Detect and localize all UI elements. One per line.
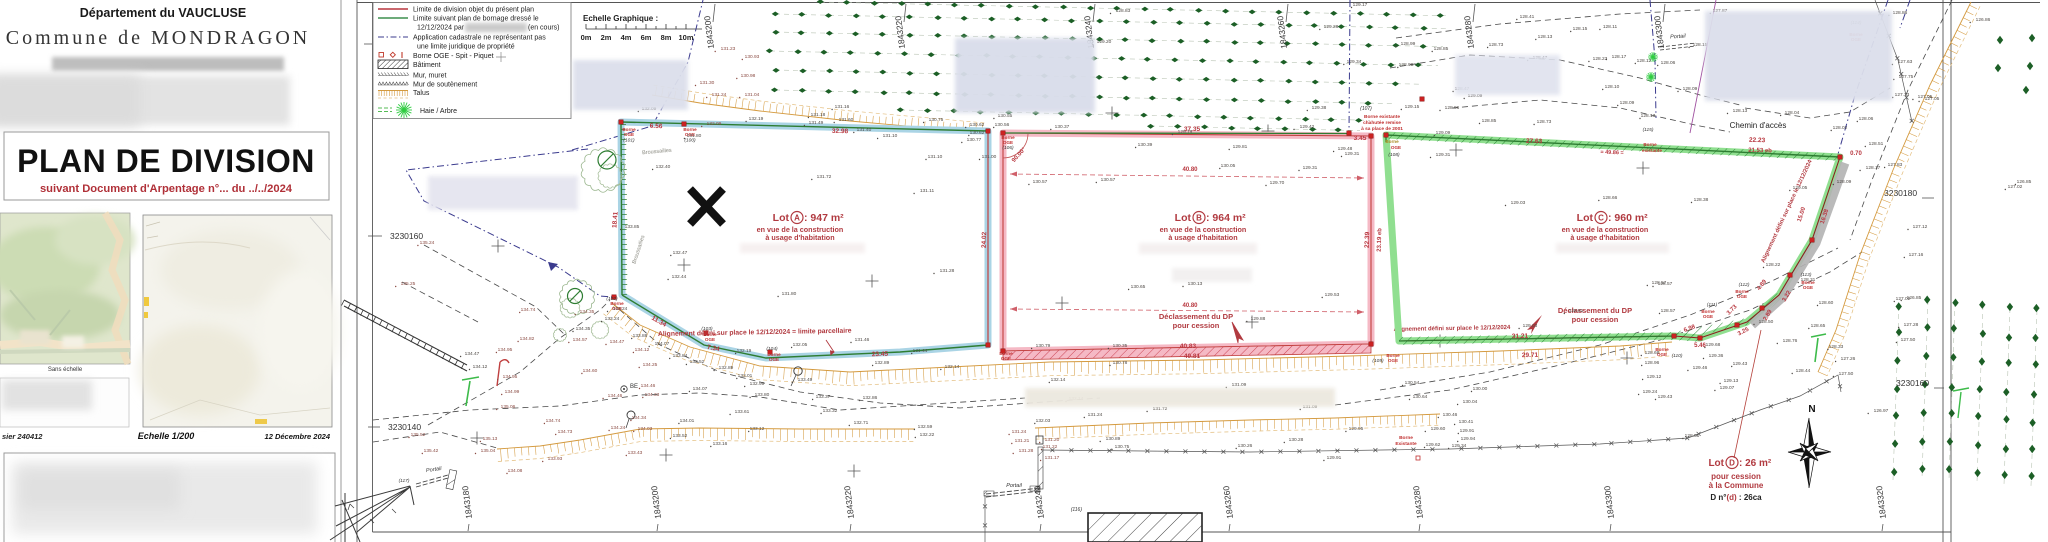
- svg-text:134.34: 134.34: [632, 415, 647, 421]
- svg-text:134.12: 134.12: [473, 364, 488, 370]
- svg-text:Portail: Portail: [1006, 483, 1022, 489]
- svg-text:128.57: 128.57: [1661, 308, 1676, 314]
- svg-text:129.12: 129.12: [1647, 374, 1662, 380]
- svg-text:128.73: 128.73: [1489, 42, 1504, 48]
- svg-text:130.93: 130.93: [745, 54, 760, 60]
- svg-text:à usage d'habitation: à usage d'habitation: [1570, 233, 1639, 242]
- svg-text:129.34: 129.34: [1347, 59, 1362, 65]
- svg-text:(109): (109): [1372, 358, 1384, 364]
- svg-text:pour cession: pour cession: [1572, 315, 1619, 324]
- svg-text:129.43: 129.43: [1733, 361, 1748, 367]
- svg-text:= 49.86 =: = 49.86 =: [1600, 150, 1623, 157]
- svg-text:130.78: 130.78: [1113, 360, 1128, 366]
- svg-text:29.71: 29.71: [1522, 352, 1539, 359]
- svg-text:135.42: 135.42: [424, 448, 439, 454]
- svg-text:133.12: 133.12: [750, 426, 765, 432]
- svg-text:Limite de division objet du pr: Limite de division objet du présent plan: [413, 7, 534, 14]
- svg-text:129.09: 129.09: [1436, 130, 1451, 136]
- svg-text:127.50: 127.50: [1839, 371, 1854, 377]
- svg-text:131.28: 131.28: [1019, 448, 1034, 454]
- svg-text:129.91: 129.91: [1327, 455, 1342, 461]
- svg-text:134.25: 134.25: [643, 362, 658, 368]
- svg-text:6.56: 6.56: [650, 123, 663, 130]
- svg-text:133.32: 133.32: [823, 408, 838, 414]
- svg-text:132.59: 132.59: [918, 424, 933, 430]
- svg-text:128.15: 128.15: [1573, 26, 1588, 32]
- svg-text:131.49: 131.49: [809, 120, 824, 126]
- svg-text:132.44: 132.44: [672, 274, 687, 280]
- svg-text:130.62: 130.62: [970, 130, 985, 136]
- svg-text:131.18: 131.18: [811, 112, 826, 118]
- svg-text:Déclassement du DP: Déclassement du DP: [1159, 312, 1233, 321]
- svg-text:129.62: 129.62: [1426, 442, 1441, 448]
- svg-text:134.46: 134.46: [641, 383, 656, 389]
- svg-text:D: D: [1729, 458, 1735, 467]
- svg-text:Lot: Lot: [1577, 212, 1594, 224]
- svg-text:Lot: Lot: [1175, 212, 1192, 224]
- svg-text:134.74: 134.74: [546, 418, 561, 424]
- svg-text:PLAN DE DIVISION: PLAN DE DIVISION: [17, 143, 315, 179]
- svg-text:129.42: 129.42: [1300, 124, 1315, 130]
- svg-text:N: N: [1808, 404, 1815, 415]
- svg-text:129.53: 129.53: [1325, 292, 1340, 298]
- svg-text:128.13: 128.13: [1641, 113, 1656, 119]
- svg-text:6m: 6m: [641, 33, 652, 42]
- svg-text:129.95: 129.95: [1349, 426, 1364, 432]
- svg-text:133.88: 133.88: [633, 333, 648, 339]
- svg-text:128.96: 128.96: [1445, 105, 1460, 111]
- svg-text:132.09: 132.09: [707, 121, 722, 127]
- svg-text:128.38: 128.38: [1694, 197, 1709, 203]
- svg-text:128.10: 128.10: [1605, 84, 1620, 90]
- svg-text:131.10: 131.10: [883, 133, 898, 139]
- svg-text:129.03: 129.03: [1523, 323, 1538, 329]
- svg-text:131.24: 131.24: [1088, 412, 1103, 418]
- svg-text:128.23: 128.23: [1593, 56, 1608, 62]
- svg-text:Département du VAUCLUSE: Département du VAUCLUSE: [80, 6, 246, 20]
- svg-text:132.03: 132.03: [1036, 418, 1051, 424]
- svg-text:130.26: 130.26: [1238, 443, 1253, 449]
- svg-text:131.44: 131.44: [913, 348, 928, 354]
- svg-text:128.99: 128.99: [1401, 41, 1416, 47]
- svg-text:130.89: 130.89: [1106, 436, 1121, 442]
- svg-text:131.17: 131.17: [1045, 455, 1060, 461]
- svg-text:OGE: OGE: [1803, 285, 1813, 290]
- svg-text:130.55: 130.55: [998, 113, 1013, 119]
- svg-text:134.74: 134.74: [521, 307, 536, 313]
- svg-text:129.60: 129.60: [1431, 426, 1446, 432]
- svg-text:OGE: OGE: [624, 132, 634, 137]
- svg-text:129.70: 129.70: [1270, 180, 1285, 186]
- svg-text:130.56: 130.56: [995, 122, 1010, 128]
- svg-text:133.80: 133.80: [755, 392, 770, 398]
- svg-text:131.40: 131.40: [857, 127, 872, 133]
- svg-text:134.12: 134.12: [635, 347, 650, 353]
- svg-text:127.83: 127.83: [1888, 162, 1903, 168]
- svg-text:129.31: 129.31: [1436, 152, 1451, 158]
- svg-text:127.05: 127.05: [1925, 96, 1940, 102]
- svg-text:132.05: 132.05: [793, 342, 808, 348]
- svg-text:134.24: 134.24: [611, 425, 626, 431]
- svg-text:128.65: 128.65: [1811, 323, 1826, 329]
- svg-text:134.35: 134.35: [576, 326, 591, 332]
- svg-text:131.72: 131.72: [817, 174, 832, 180]
- svg-text:Lot: Lot: [1708, 458, 1724, 469]
- svg-text:2m: 2m: [601, 33, 612, 42]
- svg-text:pour cession: pour cession: [1711, 472, 1761, 481]
- svg-text:Borne: Borne: [1385, 139, 1399, 144]
- svg-text:128.83: 128.83: [1116, 8, 1131, 14]
- svg-text:128.60: 128.60: [1819, 300, 1834, 306]
- svg-text:133.84: 133.84: [673, 353, 688, 359]
- svg-text:(116): (116): [1071, 507, 1083, 513]
- svg-text:130.98: 130.98: [741, 73, 756, 79]
- svg-text:128.13: 128.13: [1538, 34, 1553, 40]
- svg-text:131.80: 131.80: [687, 133, 702, 139]
- svg-text:128.51: 128.51: [1869, 141, 1884, 147]
- svg-text:BE: BE: [630, 384, 638, 390]
- svg-text:129.17: 129.17: [1353, 2, 1368, 8]
- svg-text:127.73: 127.73: [1895, 92, 1910, 98]
- svg-text:Talus: Talus: [413, 90, 430, 97]
- svg-text:131.46: 131.46: [855, 337, 870, 343]
- svg-text:128.22: 128.22: [1766, 262, 1781, 268]
- svg-text:128.06: 128.06: [1661, 60, 1676, 66]
- svg-text:A: A: [794, 213, 800, 222]
- svg-text:128.33: 128.33: [1829, 344, 1844, 350]
- svg-text:131.09: 131.09: [1232, 382, 1247, 388]
- svg-text:128.41: 128.41: [1520, 14, 1535, 20]
- svg-text:128.76: 128.76: [1783, 338, 1798, 344]
- svg-text:129.31: 129.31: [1303, 165, 1318, 171]
- svg-text:129.20: 129.20: [1097, 39, 1112, 45]
- svg-text:128.86: 128.86: [1893, 10, 1908, 16]
- svg-text:128.99: 128.99: [1399, 62, 1414, 68]
- svg-text:130.65: 130.65: [1131, 284, 1146, 290]
- svg-text:133.52: 133.52: [673, 433, 688, 439]
- svg-text:134.60: 134.60: [583, 368, 598, 374]
- svg-text:à sa place de 2001: à sa place de 2001: [1361, 126, 1403, 132]
- svg-text:131.28: 131.28: [940, 268, 955, 274]
- svg-text:(104): (104): [766, 346, 778, 352]
- svg-text:128.68: 128.68: [1645, 350, 1660, 356]
- svg-text:131.23: 131.23: [721, 46, 736, 52]
- svg-text:Borne: Borne: [1643, 142, 1657, 147]
- svg-text:128.73: 128.73: [1537, 119, 1552, 125]
- svg-text:OGE: OGE: [1737, 294, 1747, 299]
- svg-text:27.63: 27.63: [1526, 138, 1543, 146]
- svg-text:128.09: 128.09: [1837, 179, 1852, 185]
- svg-text:40.80: 40.80: [1182, 167, 1198, 173]
- svg-text:135.24: 135.24: [420, 240, 435, 246]
- svg-text:130.05: 130.05: [1221, 163, 1236, 169]
- svg-text:135.25: 135.25: [401, 281, 416, 287]
- svg-text:128.17: 128.17: [1866, 165, 1881, 171]
- svg-text:(107): (107): [1360, 106, 1372, 112]
- svg-text:Haie / Arbre: Haie / Arbre: [420, 108, 457, 115]
- svg-text:126.97: 126.97: [1874, 408, 1889, 414]
- svg-text:133.16: 133.16: [713, 441, 728, 447]
- svg-text:suivant Document d'Arpentage n: suivant Document d'Arpentage n°... du ..…: [40, 183, 293, 195]
- svg-text:131.60: 131.60: [839, 117, 854, 123]
- svg-text:135.06: 135.06: [501, 404, 516, 410]
- svg-text:8m: 8m: [661, 33, 672, 42]
- svg-text:132.22: 132.22: [920, 432, 935, 438]
- svg-text:135.04: 135.04: [481, 448, 496, 454]
- svg-text:131.24: 131.24: [1012, 429, 1027, 435]
- svg-text:133.24: 133.24: [605, 316, 620, 322]
- svg-text:OGE: OGE: [1001, 356, 1011, 361]
- svg-text:3230180: 3230180: [1884, 188, 1917, 198]
- svg-text:21.53 eb: 21.53 eb: [1748, 148, 1772, 155]
- svg-text:134.08: 134.08: [508, 468, 523, 474]
- svg-text:18.41: 18.41: [611, 211, 619, 228]
- svg-text:OGE: OGE: [769, 357, 779, 362]
- svg-text:Limite suivant plan de bornage: Limite suivant plan de bornage dressé le: [413, 16, 539, 23]
- svg-text:130.39: 130.39: [1138, 142, 1153, 148]
- svg-text:129.34: 129.34: [1452, 443, 1467, 449]
- svg-text:130.54: 130.54: [1405, 380, 1420, 386]
- svg-text:134.82: 134.82: [520, 336, 535, 342]
- svg-text:OGE: OGE: [1391, 145, 1401, 150]
- svg-text:(108): (108): [1388, 152, 1400, 158]
- svg-text:OGE: OGE: [705, 337, 715, 342]
- svg-text:133.37: 133.37: [816, 394, 831, 400]
- svg-text:134.99: 134.99: [505, 389, 520, 395]
- svg-text:128.50: 128.50: [1759, 319, 1774, 325]
- svg-text:Portail: Portail: [1670, 33, 1687, 40]
- svg-text:129.81: 129.81: [1233, 144, 1248, 150]
- svg-text:132.47: 132.47: [673, 250, 688, 256]
- svg-text:132.89: 132.89: [875, 360, 890, 366]
- svg-text:131.30: 131.30: [700, 80, 715, 86]
- svg-text:131.80: 131.80: [782, 291, 797, 297]
- svg-text:131.04: 131.04: [745, 92, 760, 98]
- svg-text:chahutée remise: chahutée remise: [1363, 120, 1401, 126]
- svg-text:128.31: 128.31: [1801, 277, 1816, 283]
- svg-text:Existante: Existante: [1395, 441, 1417, 447]
- svg-text:(101): (101): [623, 138, 635, 144]
- svg-text:130.75: 130.75: [1115, 444, 1130, 450]
- svg-text:129.68: 129.68: [1706, 342, 1721, 348]
- svg-text:134.57: 134.57: [573, 337, 588, 343]
- svg-text:Mur de soutènement: Mur de soutènement: [413, 82, 477, 89]
- svg-text:131.20: 131.20: [1045, 437, 1060, 443]
- svg-text:à usage d'habitation: à usage d'habitation: [1168, 233, 1237, 242]
- svg-text:23.45: 23.45: [872, 351, 889, 359]
- svg-text:132.14: 132.14: [945, 364, 960, 370]
- svg-text:132.86: 132.86: [863, 395, 878, 401]
- svg-text:135.52: 135.52: [411, 432, 426, 438]
- svg-text:131.21: 131.21: [1015, 438, 1030, 444]
- svg-text:132.89: 132.89: [719, 365, 734, 371]
- svg-text:130.00: 130.00: [1473, 386, 1488, 392]
- svg-text:128.81: 128.81: [1569, 308, 1584, 314]
- svg-text:OGE: OGE: [1003, 140, 1013, 145]
- svg-text:134.73: 134.73: [558, 429, 573, 435]
- svg-text:3230140: 3230140: [388, 422, 421, 432]
- svg-text:126.85: 126.85: [2017, 179, 2032, 185]
- svg-text:129.94: 129.94: [1461, 436, 1476, 442]
- svg-text:131.11: 131.11: [920, 188, 935, 194]
- svg-text:128.85: 128.85: [1434, 46, 1449, 52]
- svg-text:128.96: 128.96: [1645, 360, 1660, 366]
- svg-text:pour cession: pour cession: [1173, 321, 1220, 330]
- svg-text:(111): (111): [1707, 302, 1718, 308]
- svg-text:126.86: 126.86: [1976, 17, 1991, 23]
- svg-text:129.31: 129.31: [1345, 151, 1360, 157]
- svg-text:0.70: 0.70: [1850, 151, 1862, 157]
- svg-text:Borne OGE - Spit - Piquet: Borne OGE - Spit - Piquet: [413, 53, 494, 60]
- svg-text:128.09: 128.09: [1683, 86, 1698, 92]
- svg-text:130.28: 130.28: [1289, 437, 1304, 443]
- svg-text:129.88: 129.88: [1251, 316, 1266, 322]
- svg-text:131.10: 131.10: [928, 154, 943, 160]
- svg-text:133.93: 133.93: [548, 456, 563, 462]
- svg-text:131.22: 131.22: [1043, 444, 1058, 450]
- svg-text:134.46: 134.46: [608, 393, 623, 399]
- svg-text:127.26: 127.26: [1841, 356, 1856, 362]
- svg-text:Echelle 1/200: Echelle 1/200: [138, 431, 195, 441]
- svg-text:133.85: 133.85: [625, 224, 640, 230]
- svg-text:132.19: 132.19: [749, 116, 764, 122]
- svg-text:128.12: 128.12: [1637, 58, 1652, 64]
- svg-text:: 947 m²: : 947 m²: [804, 212, 844, 224]
- svg-text:129.28: 129.28: [1324, 24, 1339, 30]
- svg-text:134.35: 134.35: [580, 309, 595, 315]
- svg-text:130.46: 130.46: [1443, 412, 1458, 418]
- svg-text:une limite juridique de propri: une limite juridique de propriété: [417, 44, 515, 51]
- svg-text:131.24: 131.24: [712, 92, 727, 98]
- svg-text:128.09: 128.09: [1620, 100, 1635, 106]
- svg-text:130.62: 130.62: [970, 122, 985, 128]
- svg-text:12/12/2024 par: 12/12/2024 par: [417, 25, 465, 32]
- svg-text:133.61: 133.61: [735, 409, 750, 415]
- svg-text:132.40: 132.40: [656, 164, 671, 170]
- svg-text:130.37: 130.37: [1055, 124, 1070, 130]
- svg-text:129.36: 129.36: [1709, 353, 1724, 359]
- svg-text:129.05: 129.05: [1793, 185, 1808, 191]
- svg-text:(112): (112): [1739, 282, 1750, 288]
- svg-text:128.13: 128.13: [1733, 108, 1748, 114]
- svg-text:127.12: 127.12: [1913, 224, 1928, 230]
- svg-text:40.80: 40.80: [1182, 303, 1198, 309]
- svg-text:129.79: 129.79: [1178, 129, 1193, 135]
- svg-text:127.28: 127.28: [1904, 322, 1919, 328]
- svg-text:OGE: OGE: [1703, 314, 1713, 319]
- svg-text:22.39: 22.39: [1364, 231, 1372, 248]
- svg-text:130.64: 130.64: [1413, 394, 1428, 400]
- svg-text:: 960 m²: : 960 m²: [1608, 212, 1648, 224]
- svg-text:130.79: 130.79: [1036, 343, 1051, 349]
- svg-text:3.45: 3.45: [1354, 135, 1367, 142]
- svg-text:128.04: 128.04: [1785, 110, 1800, 116]
- svg-text:129.38: 129.38: [1312, 105, 1327, 111]
- svg-text:128.51: 128.51: [1685, 433, 1700, 439]
- svg-text:10m: 10m: [678, 33, 693, 42]
- svg-text:Borne existante: Borne existante: [1364, 114, 1400, 120]
- svg-text:31.21: 31.21: [1512, 333, 1529, 340]
- svg-text:à la Commune: à la Commune: [1709, 481, 1764, 490]
- svg-text:D n°(d) : 26ca: D n°(d) : 26ca: [1710, 493, 1762, 502]
- svg-text:Lot: Lot: [773, 212, 790, 224]
- svg-text:134.95: 134.95: [503, 374, 518, 380]
- svg-text:130.57: 130.57: [1033, 179, 1048, 185]
- svg-text:à usage d'habitation: à usage d'habitation: [765, 233, 834, 242]
- svg-text:(en cours): (en cours): [528, 25, 560, 32]
- svg-text:existante: existante: [1642, 148, 1662, 153]
- svg-text:128.66: 128.66: [1603, 195, 1618, 201]
- svg-text:sier 240412: sier 240412: [2, 432, 43, 441]
- svg-text:127.75: 127.75: [1899, 74, 1914, 80]
- svg-text:130.57: 130.57: [1101, 177, 1116, 183]
- svg-text:128.02: 128.02: [1833, 125, 1848, 131]
- svg-text:134.07: 134.07: [655, 341, 670, 347]
- svg-text:130.77: 130.77: [967, 137, 982, 143]
- svg-text:132.14: 132.14: [1051, 377, 1066, 383]
- svg-text:24.02: 24.02: [981, 231, 989, 248]
- svg-text:Application cadastrale ne repr: Application cadastrale ne représentant p…: [413, 35, 546, 42]
- svg-text:133.52: 133.52: [690, 359, 705, 365]
- svg-text:132.19: 132.19: [737, 348, 752, 354]
- svg-text:C: C: [1598, 213, 1604, 222]
- svg-text:127.16: 127.16: [1909, 252, 1924, 258]
- svg-text:127.02: 127.02: [1896, 296, 1911, 302]
- svg-text:134.33: 134.33: [645, 392, 660, 398]
- svg-text:129.46: 129.46: [1693, 365, 1708, 371]
- svg-text:Chemin d'accès: Chemin d'accès: [1730, 121, 1787, 130]
- svg-text:130.04: 130.04: [1463, 399, 1478, 405]
- svg-text:Echelle Graphique :: Echelle Graphique :: [583, 14, 658, 23]
- svg-text:129.13: 129.13: [1724, 378, 1739, 384]
- svg-text:135.13: 135.13: [483, 436, 498, 442]
- svg-text:3230160: 3230160: [390, 231, 423, 241]
- svg-text:128.44: 128.44: [1796, 368, 1811, 374]
- svg-text:134.95: 134.95: [498, 347, 513, 353]
- svg-text:134.07: 134.07: [693, 386, 708, 392]
- svg-text:132.71: 132.71: [854, 420, 869, 426]
- svg-text:133.24: 133.24: [613, 306, 628, 312]
- svg-text:(115): (115): [1643, 127, 1654, 133]
- svg-text:40.83: 40.83: [1180, 343, 1197, 350]
- svg-text:128.57: 128.57: [1658, 281, 1673, 287]
- svg-text:129.43: 129.43: [1658, 394, 1673, 400]
- svg-text:133.43: 133.43: [628, 450, 643, 456]
- svg-text:(110): (110): [1672, 353, 1683, 359]
- svg-text:134.01: 134.01: [680, 418, 695, 424]
- svg-text:129.07: 129.07: [1720, 385, 1735, 391]
- svg-text:(117): (117): [399, 478, 410, 484]
- svg-text:128.85: 128.85: [1482, 118, 1497, 124]
- svg-text:130.75: 130.75: [929, 117, 944, 123]
- svg-text:32.98: 32.98: [832, 128, 849, 135]
- svg-text:: 26 m²: : 26 m²: [1739, 458, 1772, 469]
- svg-text:22.23: 22.23: [1749, 137, 1766, 145]
- svg-text:131.00: 131.00: [982, 154, 997, 160]
- svg-text:0m: 0m: [581, 33, 592, 42]
- svg-text:12 Décembre 2024: 12 Décembre 2024: [265, 432, 331, 441]
- svg-text:134.47: 134.47: [465, 351, 480, 357]
- svg-text:134.03: 134.03: [638, 426, 653, 432]
- svg-text:133.01: 133.01: [738, 373, 753, 379]
- svg-text:: 964 m²: : 964 m²: [1206, 212, 1246, 224]
- svg-text:130.41: 130.41: [1459, 419, 1474, 425]
- svg-text:4m: 4m: [621, 33, 632, 42]
- svg-text:128.11: 128.11: [1603, 24, 1618, 30]
- svg-text:127.63: 127.63: [1898, 59, 1913, 65]
- svg-text:129.15: 129.15: [1405, 104, 1420, 110]
- svg-text:127.50: 127.50: [1901, 337, 1916, 343]
